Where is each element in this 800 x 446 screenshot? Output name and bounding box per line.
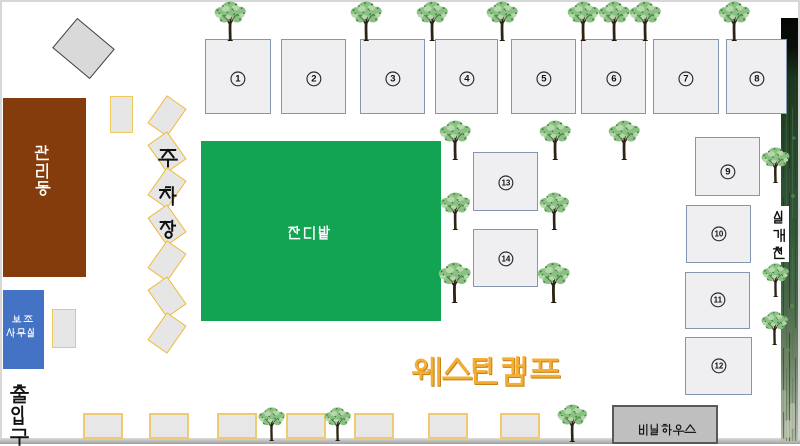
svg-text:4: 4 bbox=[464, 74, 470, 85]
svg-text:9: 9 bbox=[725, 167, 730, 178]
svg-text:11: 11 bbox=[713, 296, 722, 305]
svg-text:5: 5 bbox=[541, 74, 547, 85]
svg-text:13: 13 bbox=[501, 179, 510, 188]
svg-text:7: 7 bbox=[683, 74, 688, 85]
svg-text:14: 14 bbox=[501, 255, 510, 264]
svg-text:3: 3 bbox=[390, 74, 395, 85]
svg-text:10: 10 bbox=[714, 230, 723, 239]
svg-text:6: 6 bbox=[611, 74, 616, 85]
svg-text:8: 8 bbox=[754, 74, 759, 85]
svg-text:1: 1 bbox=[235, 74, 241, 85]
svg-text:12: 12 bbox=[714, 362, 723, 371]
svg-text:2: 2 bbox=[311, 74, 316, 85]
